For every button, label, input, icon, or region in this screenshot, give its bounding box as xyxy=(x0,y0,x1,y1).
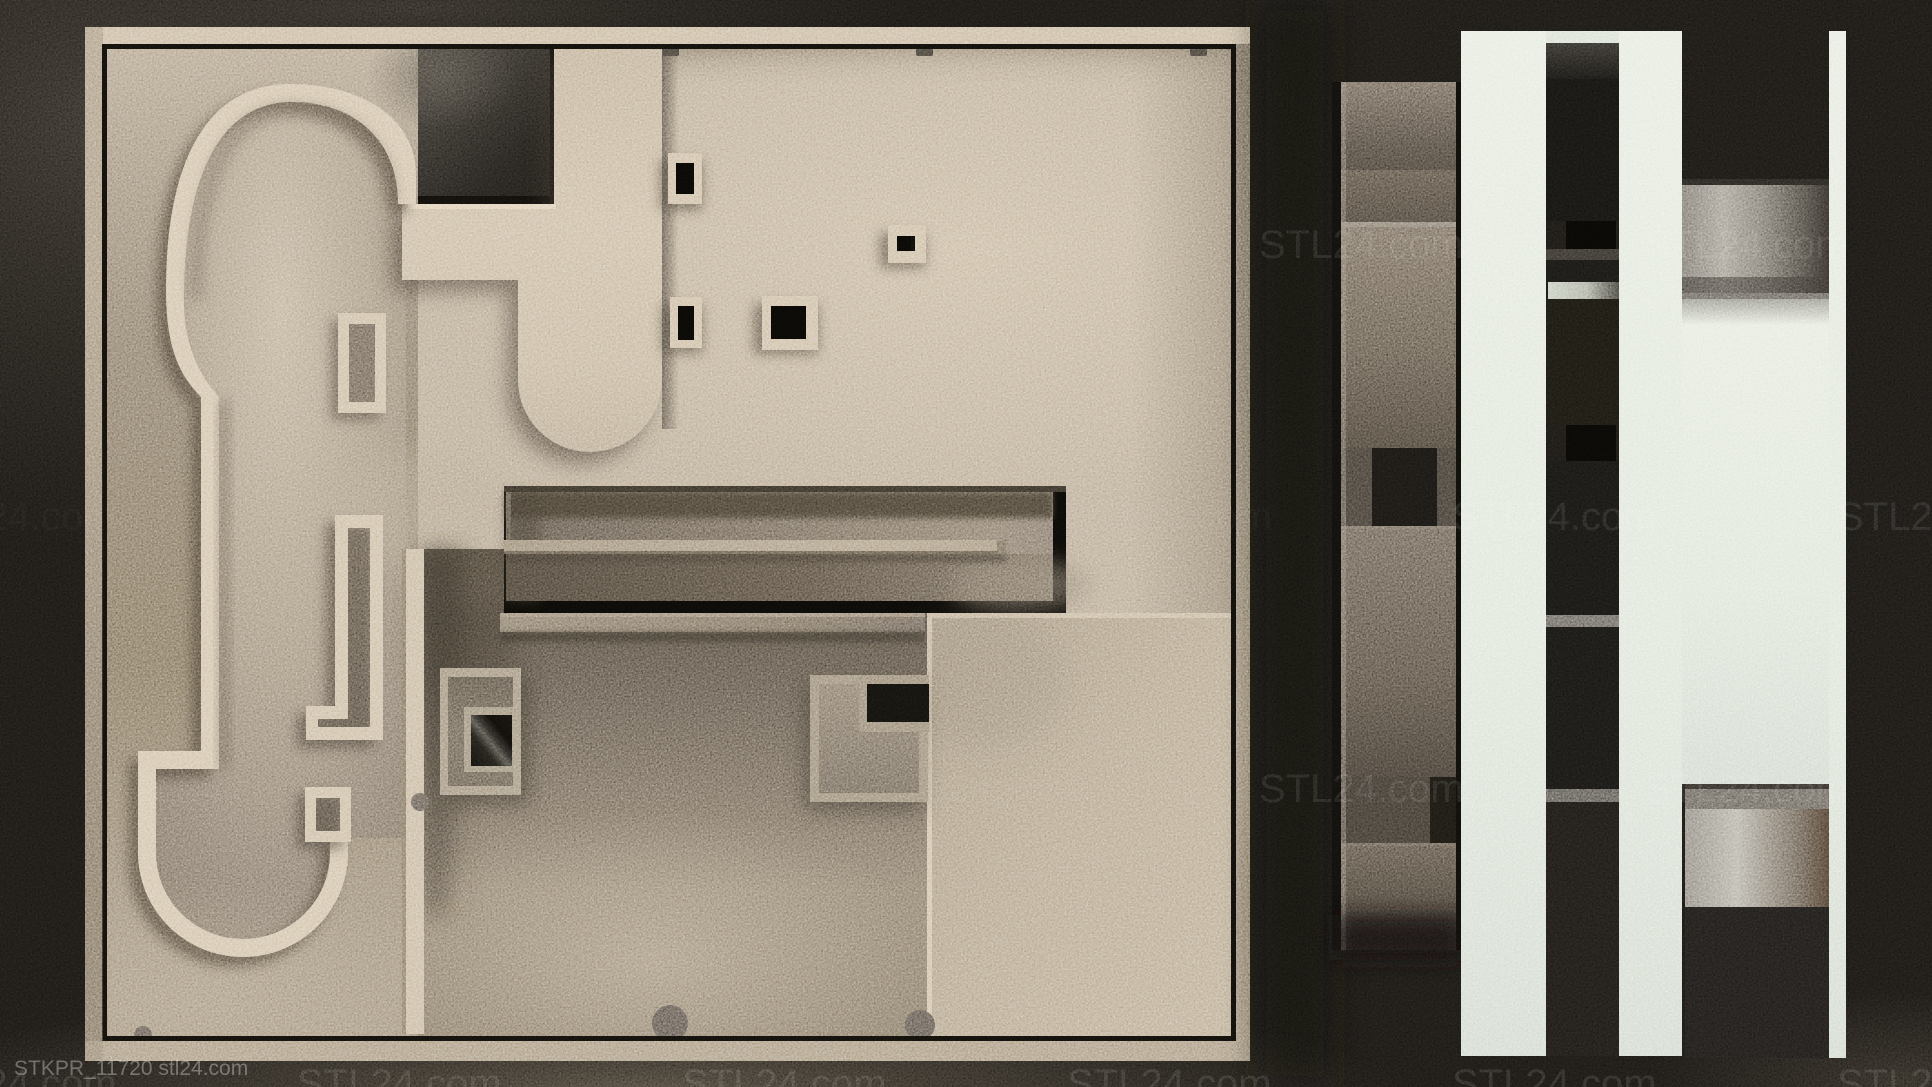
svg-text:STKPR_11720 stl24.com: STKPR_11720 stl24.com xyxy=(14,1057,248,1080)
